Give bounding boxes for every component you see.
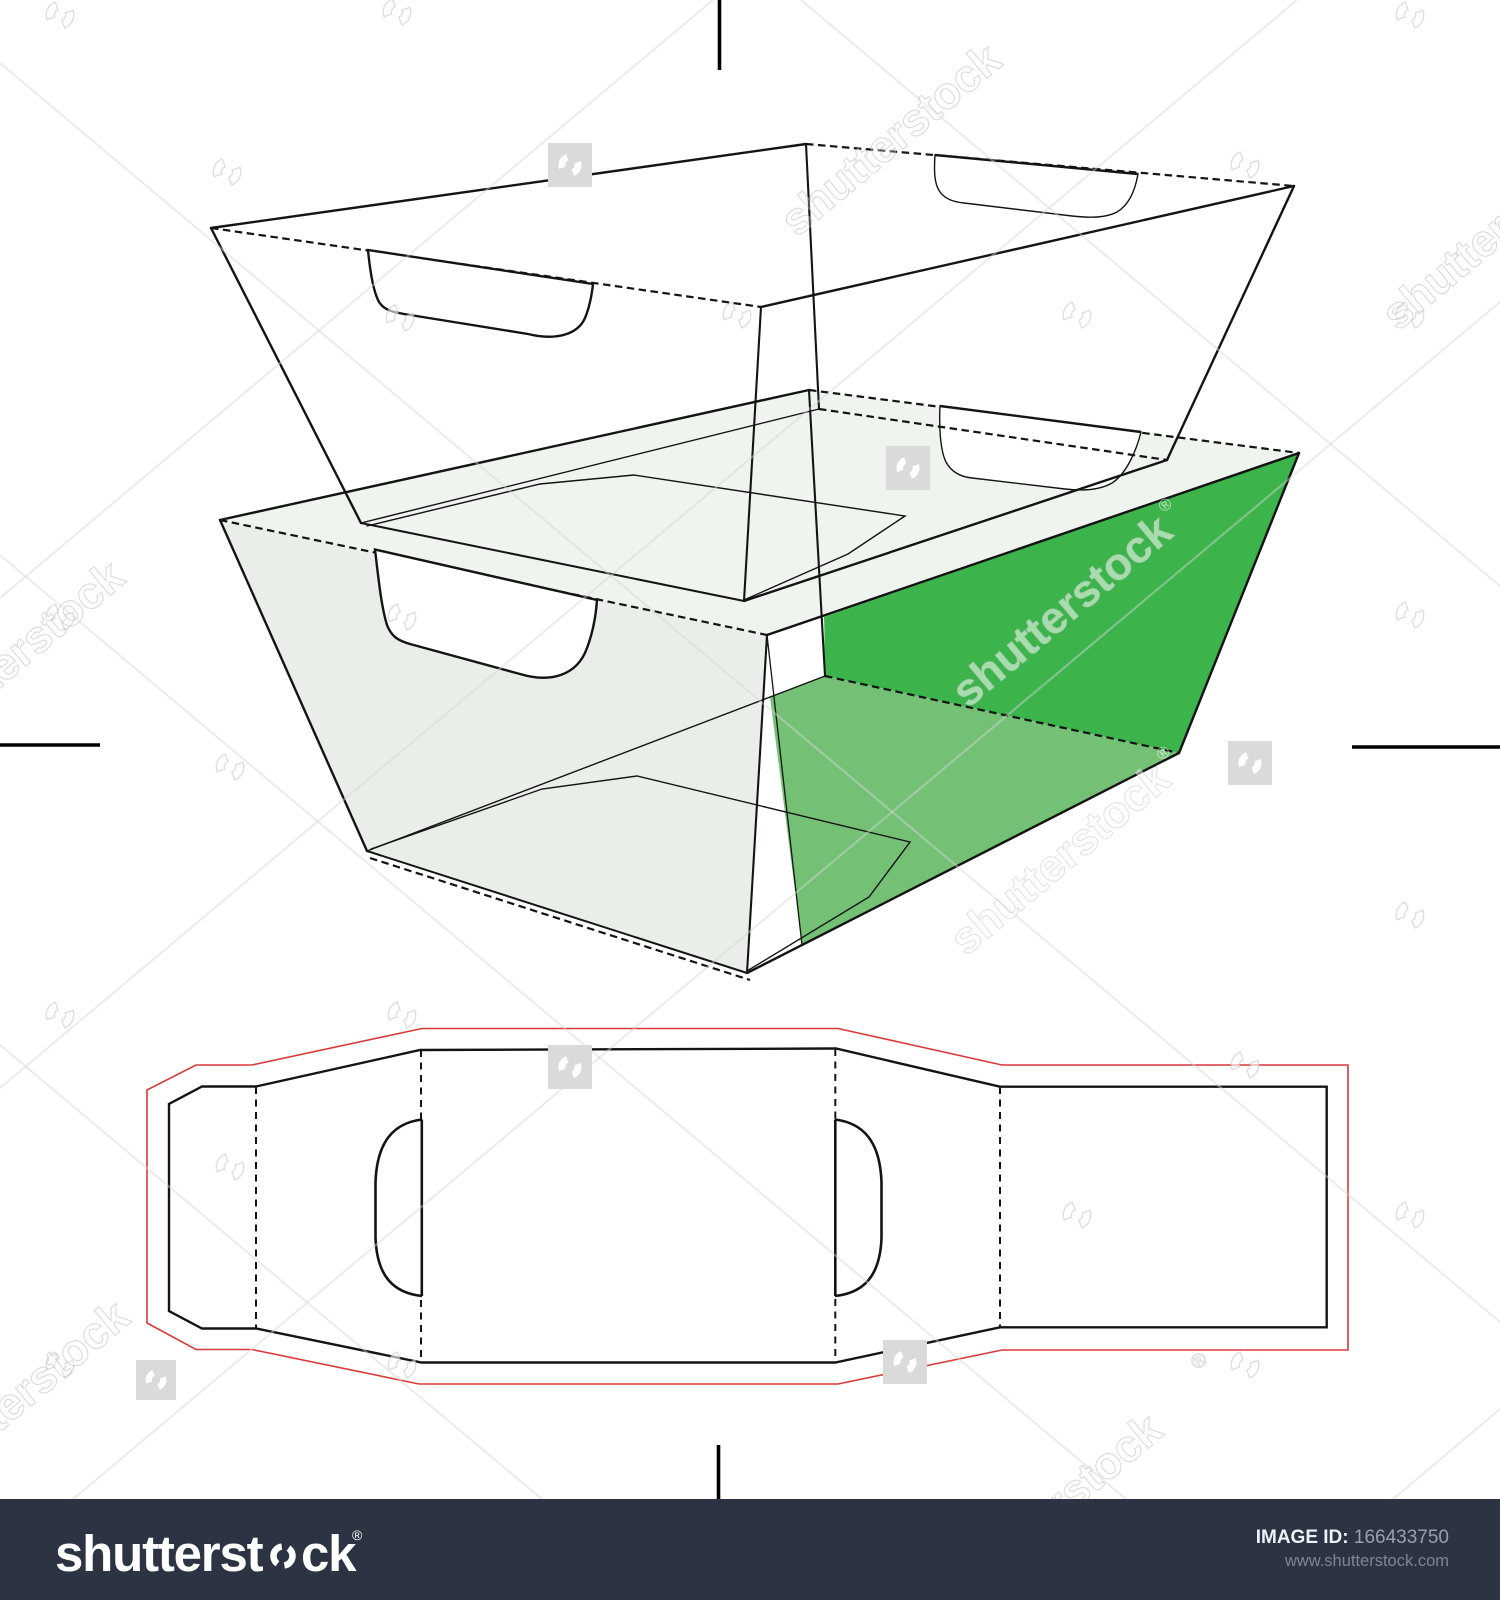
svg-text:www.shutterstock.com: www.shutterstock.com <box>1284 1552 1449 1570</box>
svg-text:ck: ck <box>301 1525 357 1582</box>
svg-text:shutterst: shutterst <box>55 1525 264 1582</box>
svg-text:IMAGE ID: 166433750: IMAGE ID: 166433750 <box>1256 1527 1449 1548</box>
svg-text:®: ® <box>352 1527 363 1543</box>
